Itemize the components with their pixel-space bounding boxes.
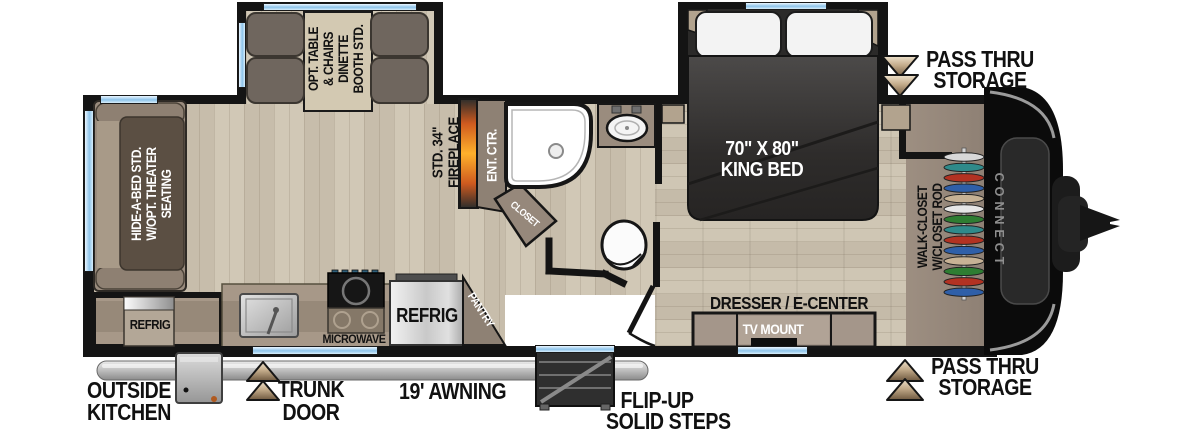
nightstand (858, 10, 878, 46)
outside-kitchen-label: OUTSIDE KITCHEN (87, 379, 172, 423)
connect-logo: CONNECT (991, 146, 1007, 296)
entry-steps (536, 348, 614, 410)
steps-label: FLIP-UP SOLID STEPS (606, 390, 708, 432)
dinette-label: OPT. TABLE & CHAIRS DINETTE BOOTH STD. (306, 6, 368, 112)
refrig-label: REFRIG (385, 305, 470, 328)
pass-thru-arrow-up-icon (887, 360, 923, 400)
rv-floorplan: OPT. TABLE & CHAIRS DINETTE BOOTH STD. H… (0, 0, 1200, 437)
awning-label: 19' AWNING (399, 378, 501, 405)
window (238, 22, 246, 88)
pillow (786, 12, 872, 57)
window (745, 2, 827, 10)
bathroom-floor (505, 103, 655, 295)
window (100, 95, 158, 104)
outside-kitchen-compartment (176, 353, 222, 403)
microwave-label: MICROWAVE (300, 332, 408, 346)
awning-tube (97, 361, 648, 380)
trunk-door-label: TRUNK DOOR (269, 378, 354, 424)
king-bed-label: 70" X 80" KING BED (700, 139, 823, 181)
window (737, 346, 808, 355)
pass-thru-bottom-label: PASS THRU STORAGE (930, 356, 1041, 398)
ent-ctr-label: ENT. CTR. (485, 107, 500, 204)
fireplace-label: STD. 34" FIREPLACE (431, 104, 464, 201)
nightstand (688, 10, 707, 34)
pass-thru-arrow-down-icon (882, 56, 918, 96)
hitch (1052, 176, 1120, 272)
window (252, 346, 378, 355)
pass-thru-top-label: PASS THRU STORAGE (925, 49, 1036, 91)
dresser-label: DRESSER / E-CENTER (701, 293, 877, 314)
walk-closet-label: WALK-CLOSET W/CLOSET ROD (916, 161, 946, 293)
pillow (696, 12, 781, 57)
tv-mount-label: TV MOUNT (720, 321, 826, 337)
window (84, 110, 94, 272)
outside-refrig-label: REFRIG (115, 317, 185, 332)
entry-door-threshold (535, 345, 615, 353)
entry-door-swing (629, 286, 655, 346)
sofa-label: HIDE-A-BED STD. W/OPT. THEATER SEATING (129, 141, 175, 247)
